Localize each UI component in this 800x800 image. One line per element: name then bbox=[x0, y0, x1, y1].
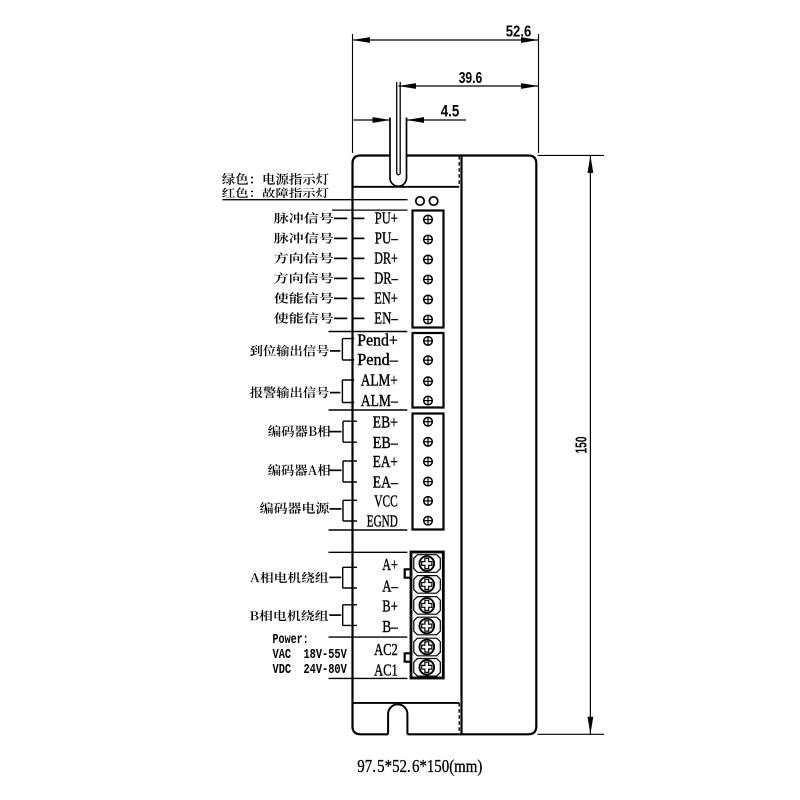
svg-text:DR+: DR+ bbox=[374, 249, 398, 268]
svg-text:Pend+: Pend+ bbox=[357, 331, 398, 350]
svg-text:EA+: EA+ bbox=[373, 452, 398, 471]
svg-text:EN–: EN– bbox=[374, 309, 398, 328]
svg-text:VAC 18V-55V: VAC 18V-55V bbox=[273, 647, 348, 663]
svg-text:ALM+: ALM+ bbox=[361, 371, 398, 390]
svg-text:ALM–: ALM– bbox=[361, 391, 399, 410]
svg-text:A–: A– bbox=[382, 576, 398, 595]
svg-text:PU–: PU– bbox=[375, 229, 399, 248]
svg-text:39.6: 39.6 bbox=[459, 70, 483, 87]
svg-text:97. 5*52. 6*150(mm): 97. 5*52. 6*150(mm) bbox=[357, 756, 482, 777]
svg-text:Power:: Power: bbox=[273, 632, 309, 648]
svg-text:150: 150 bbox=[574, 437, 591, 454]
svg-text:AC2: AC2 bbox=[374, 640, 398, 659]
svg-text:EA–: EA– bbox=[373, 472, 399, 491]
svg-text:EN+: EN+ bbox=[374, 289, 398, 308]
svg-text:A+: A+ bbox=[382, 555, 398, 574]
svg-text:4.5: 4.5 bbox=[441, 103, 460, 121]
svg-text:EB+: EB+ bbox=[373, 413, 398, 432]
svg-text:VDC 24V-80V: VDC 24V-80V bbox=[273, 662, 348, 678]
svg-text:VCC: VCC bbox=[374, 491, 398, 510]
svg-text:PU+: PU+ bbox=[375, 209, 398, 228]
svg-text:EB–: EB– bbox=[373, 433, 399, 452]
svg-text:52.6: 52.6 bbox=[506, 24, 532, 41]
svg-text:EGND: EGND bbox=[367, 512, 398, 531]
svg-text:DR–: DR– bbox=[374, 269, 398, 288]
svg-text:B+: B+ bbox=[382, 596, 398, 615]
svg-text:AC1: AC1 bbox=[374, 661, 398, 680]
svg-text:B–: B– bbox=[382, 617, 398, 636]
svg-text:Pend–: Pend– bbox=[357, 350, 398, 369]
